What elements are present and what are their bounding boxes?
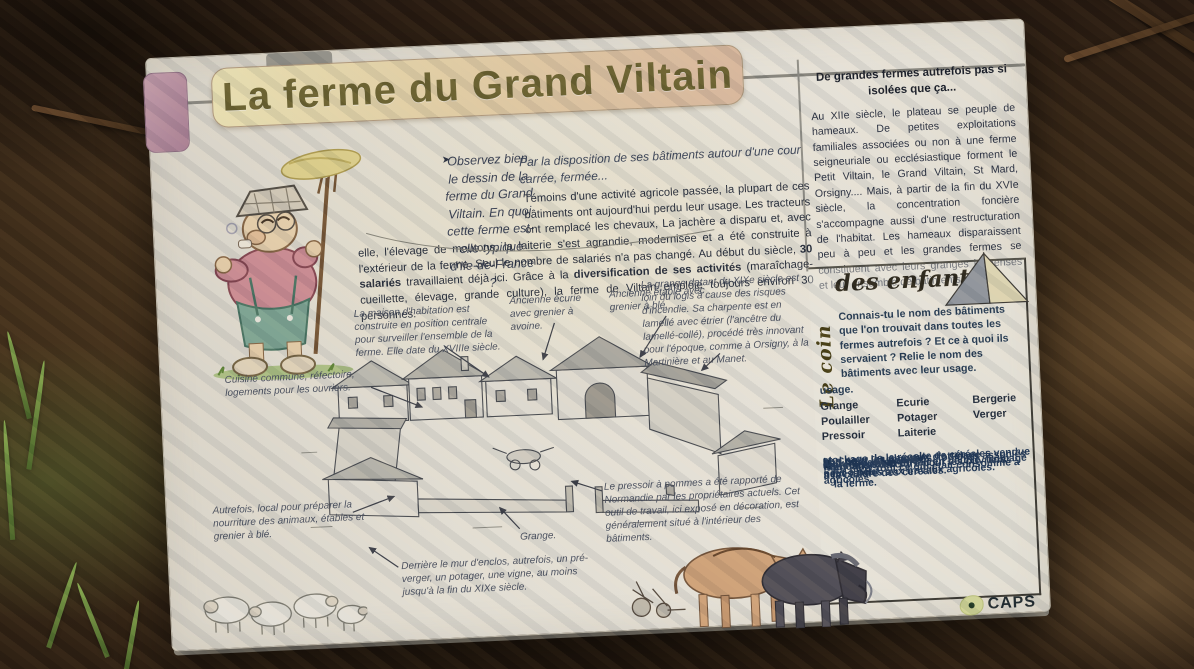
grain-pile-illustration	[937, 243, 1032, 309]
sheep-illustration	[198, 574, 369, 644]
word-item: Laiterie	[898, 424, 974, 439]
corner-decoration	[143, 71, 191, 153]
word-item: Poulailler	[821, 413, 897, 428]
caps-logo: CAPS	[959, 589, 1050, 619]
caption-etable: Ancienne étable avec grenier à blé.	[609, 284, 718, 315]
caption-autrefois: Autrefois, local pour préparer la nourri…	[212, 498, 372, 544]
grass-blade	[46, 561, 79, 648]
word-item: Bergerie	[972, 392, 1026, 406]
kids-intro: Connais-tu le nom des bâtiments que l'on…	[838, 302, 1025, 382]
word-item: Pressoir	[822, 428, 898, 443]
intro-question: ➤ Observez bien le dessin de la ferme du…	[351, 150, 533, 158]
caption-grange-label: Grange.	[520, 528, 581, 544]
photo-background: La ferme du Grand Viltain De grandes fer…	[0, 0, 1194, 669]
sidebar-heading: De grandes fermes autrefois pas si isolé…	[809, 62, 1014, 102]
grass-blade	[75, 582, 110, 658]
caption-ecurie: Ancienne écurie avec grenier à avoine.	[509, 291, 605, 334]
information-panel: La ferme du Grand Viltain De grandes fer…	[145, 18, 1051, 651]
word-item: Verger	[973, 407, 1027, 421]
word-item: Potager	[897, 409, 973, 424]
kids-bullet-list: ↪stockage de la récolte de céréales vend…	[823, 445, 1032, 491]
grass-blade	[124, 600, 141, 669]
caption-maison: La maison d'habitation est construite en…	[354, 301, 508, 360]
word-item: Grange	[820, 398, 896, 413]
caption-enclos: Derrière le mur d'enclos, autrefois, un …	[401, 552, 593, 600]
grass-blade	[2, 420, 15, 540]
grass-blade	[5, 331, 32, 420]
kids-word-list: Grange Ecurie Bergerie Poulailler Potage…	[820, 392, 1028, 443]
logo-text: CAPS	[987, 593, 1036, 613]
horses-illustration	[620, 518, 889, 636]
word-item: Ecurie	[896, 394, 972, 409]
logo-leaf-icon	[959, 595, 984, 616]
